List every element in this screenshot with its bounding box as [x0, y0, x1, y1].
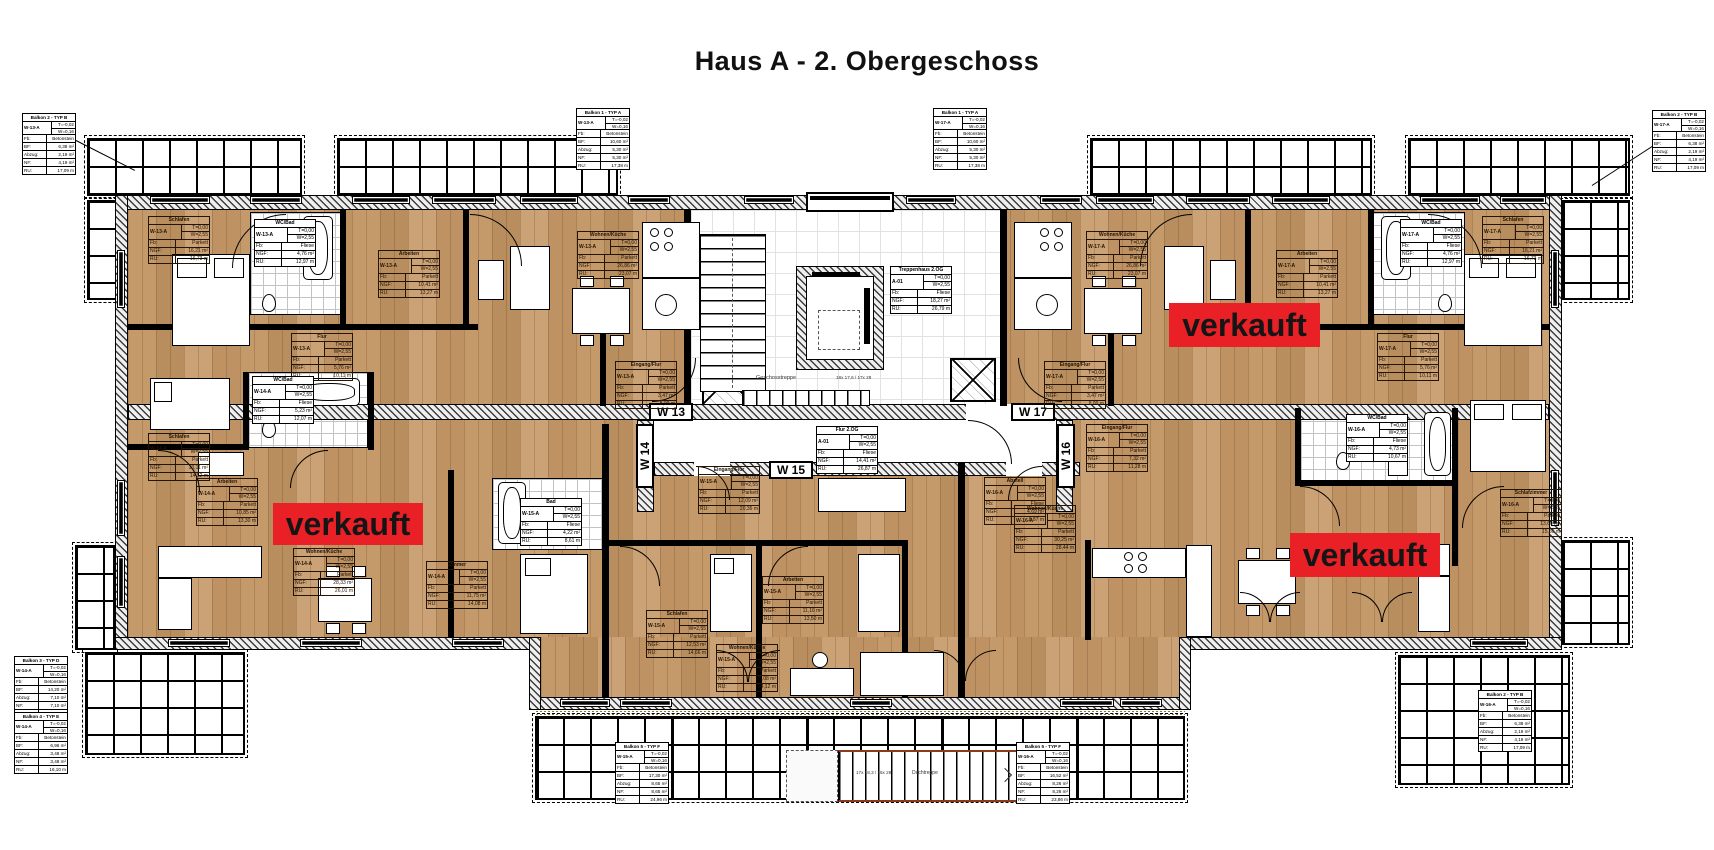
entrance-door [806, 192, 894, 212]
wall [243, 372, 249, 450]
room-table-arbeiten-w14: ArbeitenW-14-AT=0,00W=2,55Fb:ParkettNGF:… [196, 478, 258, 526]
chair [1122, 335, 1136, 346]
elevator-counterweight [864, 288, 870, 344]
elevator-clearance [818, 310, 860, 350]
window [117, 250, 125, 308]
sofa-w16-b [1418, 576, 1450, 632]
window [117, 480, 125, 536]
pillow [1474, 404, 1504, 420]
window [168, 639, 230, 647]
window [560, 699, 610, 707]
wall [340, 210, 346, 326]
window [1060, 699, 1114, 707]
sold-banner-w17: verkauft [1169, 303, 1320, 347]
room-table-bad-w16: WC/BadW-16-AT=0,00W=2,55Fb:FlieseNGF:4,7… [1346, 414, 1408, 462]
outer-stair-label: Dachtreppe [912, 770, 938, 776]
wall-mid-upper [128, 404, 1549, 420]
room-table-schlafen-w13: SchlafenW-13-AT=0,00W=2,55Fb:ParkettNGF:… [148, 216, 210, 264]
wall-step-left [529, 637, 541, 710]
unit-label-w16: W 16 [1057, 424, 1075, 488]
wall [1452, 408, 1458, 566]
window [300, 639, 362, 647]
balcony-bottom-left-side [75, 545, 115, 650]
room-table-bad-w14: WC/BadW-14-AT=0,00W=2,55Fb:FlieseNGF:5,2… [252, 376, 314, 424]
dining-table-w13 [572, 288, 630, 334]
window [1420, 196, 1480, 204]
room-table-schlafzimmer-w16: SchlafzimmerW-16-AT=0,00W=2,55Fb:Parkett… [1500, 489, 1562, 537]
window [432, 196, 496, 204]
room-table-wohnen-w17: Wohnen/KücheW-17-AT=0,00W=2,55Fb:Parkett… [1086, 231, 1148, 279]
balcony-top-right [1408, 138, 1630, 196]
pillow [525, 558, 551, 576]
wall [1295, 480, 1458, 486]
room-table-wohnen-w16: Wohnen/KücheW-16-AT=0,00W=2,55Fb:Parkett… [1014, 505, 1076, 553]
room-table-wohnen-w14: Wohnen/KücheW-14-AT=0,00W=2,55Fb:Parkett… [293, 548, 355, 596]
chair [580, 335, 594, 346]
kitchen-counter-w15 [818, 478, 906, 512]
window [1120, 699, 1162, 707]
wall [463, 210, 469, 326]
window [628, 196, 670, 204]
balcony-table-terrace-right: Balkon 5 - TYP FW-16-AT=-0,02W=0,16Fb:Be… [1016, 742, 1070, 804]
balcony-table-top-left: Balkon 2 - TYP BW-13-AT=-0,02W=0,16Fb:Be… [22, 113, 76, 175]
unit-label-w15: W 15 [769, 461, 813, 479]
stair-flight [700, 234, 766, 392]
chair [1276, 548, 1290, 559]
balcony-table-bottom-left-b: Balkon 4 - TYP EW-14-AT=-0,02W=0,16Fb:Be… [14, 712, 68, 774]
toilet-w17 [1438, 294, 1452, 312]
outer-stair-dims: 17x 18,3 / 16x 28 [856, 770, 891, 775]
shaft-right [950, 358, 996, 402]
stove-burner [664, 228, 673, 237]
wall [368, 372, 374, 450]
pillow [1512, 404, 1542, 420]
pillow [714, 558, 734, 574]
entrance-threshold [810, 196, 890, 200]
balcony-top-left [87, 138, 302, 196]
wall [1368, 210, 1374, 326]
room-table-treppenhaus: Treppenhaus 2.OGA-01T=0,00W=2,55Fb:Flies… [890, 266, 952, 314]
stove-burner [1124, 552, 1133, 561]
window [352, 196, 410, 204]
room-table-schlafen-w17: SchlafenW-17-AT=0,00W=2,55Fb:ParkettNGF:… [1482, 216, 1544, 264]
balcony-bottom-right-side [1562, 540, 1630, 645]
window [150, 196, 210, 204]
balcony-top-right-side [1562, 200, 1630, 300]
stove-burner [650, 242, 659, 251]
room-table-bad-w13: WC/BadW-13-AT=0,00W=2,55Fb:FlieseNGF:4,7… [254, 219, 316, 267]
chair [326, 623, 340, 634]
window [250, 196, 302, 204]
window [1470, 639, 1528, 647]
room-table-eingang-w15: Eingang/FlurW-15-AT=0,00W=2,55Fb:Parkett… [698, 466, 760, 514]
floor-plan: Haus A - 2. Obergeschoss [0, 0, 1714, 850]
room-table-bad-w15: BadW-15-AT=0,00W=2,55Fb:FlieseNGF:4,22 m… [520, 498, 582, 546]
bathtub-w16 [1424, 412, 1451, 476]
sofa-w14-b [158, 578, 192, 630]
room-table-arbeiten-w17: ArbeitenW-17-AT=0,00W=2,55Fb:ParkettNGF:… [1276, 250, 1338, 298]
window [744, 196, 794, 204]
window [906, 196, 956, 204]
chair [610, 335, 624, 346]
balcony-table-top-right: Balkon 2 - TYP BW-17-AT=-0,02W=0,16Fb:Be… [1652, 110, 1706, 172]
wall [1085, 540, 1091, 640]
room-table-flur-w17: FlurW-17-AT=0,00W=2,55Fb:ParkettNGF:5,76… [1377, 333, 1439, 381]
balcony-table-top-mid-right: Balkon 1 - TYP AW-17-AT=-0,02W=0,16Fb:Be… [933, 108, 987, 170]
stove-burner [1040, 228, 1049, 237]
room-table-flur-og: Flur 2.OGA-01T=0,00W=2,55Fb:FlieseNGF:14… [816, 426, 878, 474]
kitchen-island-w15 [790, 668, 854, 696]
toilet-w13 [262, 294, 276, 312]
sold-banner-w14: verkauft [273, 503, 423, 545]
sideboard-w15 [860, 652, 944, 696]
balcony-table-terrace-left: Balkon 5 - TYP FW-15-AT=-0,02W=0,16Fb:Be… [615, 742, 669, 804]
elevator-door [812, 272, 860, 276]
stair-bottom-run [742, 390, 870, 406]
window [1040, 196, 1082, 204]
wall [602, 424, 609, 697]
chair [1092, 335, 1106, 346]
room-table-arbeiten-w13: ArbeitenW-13-AT=0,00W=2,55Fb:ParkettNGF:… [378, 250, 440, 298]
stove-burner [1138, 564, 1147, 573]
window [1272, 196, 1330, 204]
window [1551, 250, 1559, 308]
chair [352, 623, 366, 634]
room-table-wohnen-w15: Wohnen/KücheW-15-AT=0,00W=2,55Fb:Parkett… [716, 644, 778, 692]
wall-step-right [1179, 637, 1191, 710]
bed-w15-b [858, 554, 900, 632]
balcony-table-bottom-right: Balkon 2 - TYP BW-16-AT=-0,02W=0,16Fb:Be… [1478, 690, 1532, 752]
window [117, 556, 125, 608]
stove-burner [1138, 552, 1147, 561]
balcony-table-top-mid-left: Balkon 1 - TYP AW-13-AT=-0,02W=0,16Fb:Be… [576, 108, 630, 170]
page-title: Haus A - 2. Obergeschoss [607, 46, 1127, 77]
room-table-eingang-w16: Eingang/FlurW-16-AT=0,00W=2,55Fb:Parkett… [1086, 424, 1148, 472]
room-table-wohnen-w13: Wohnen/KücheW-13-AT=0,00W=2,55Fb:Parkett… [577, 231, 639, 279]
wall [1295, 408, 1301, 486]
unit-label-w14: W 14 [636, 424, 654, 488]
window [1186, 196, 1250, 204]
sold-banner-w16: verkauft [1290, 533, 1440, 577]
pillow [154, 382, 172, 402]
stove-burner [650, 228, 659, 237]
kitchen-sink-w17 [1036, 294, 1058, 316]
room-table-schlafen-w15: SchlafenW-15-AT=0,00W=2,55Fb:ParkettNGF:… [646, 610, 708, 658]
stove-burner [1040, 242, 1049, 251]
room-table-bad-w17: WC/BadW-17-AT=0,00W=2,55Fb:FlieseNGF:4,7… [1400, 219, 1462, 267]
outer-stair [838, 750, 1022, 802]
room-table-eingang-w17: Eingang/FlurW-17-AT=0,00W=2,55Fb:Parkett… [1044, 361, 1106, 409]
gravel-strip [535, 710, 1185, 716]
window [452, 639, 504, 647]
sofa-w14-a [158, 546, 262, 578]
coffee-table-w13 [478, 260, 504, 300]
coffee-table-w17 [1210, 260, 1236, 300]
stair-dims: 18x 17,6 / 17x 28 [836, 375, 871, 380]
outer-stair-landing [786, 750, 838, 802]
balcony-top-mid-right [1090, 138, 1372, 196]
cooktop-pot [812, 652, 828, 668]
wall [448, 470, 454, 637]
room-table-zimmer-w14: ZimmerW-14-AT=0,00W=2,55Fb:ParkettNGF:11… [426, 561, 488, 609]
balcony-table-bottom-left-a: Balkon 3 - TYP DW-14-AT=-0,02W=0,16Fb:Be… [14, 656, 68, 718]
room-table-arbeiten-w15: ArbeitenW-15-AT=0,00W=2,55Fb:ParkettNGF:… [762, 576, 824, 624]
window [520, 196, 578, 204]
chair [1246, 548, 1260, 559]
stair-walkline [732, 238, 733, 388]
window [1096, 196, 1154, 204]
kitchen-sink-w13 [655, 294, 677, 316]
wall [600, 330, 606, 406]
window [620, 699, 672, 707]
room-table-eingang-w13: Eingang/FlurW-13-AT=0,00W=2,55Fb:Parkett… [615, 361, 677, 409]
opening-stair-corridor [966, 404, 1014, 420]
wall [1108, 330, 1114, 406]
balcony-bottom-left [85, 652, 245, 755]
stove-burner [1054, 242, 1063, 251]
stove-burner [1054, 228, 1063, 237]
stove-burner [664, 242, 673, 251]
window [850, 699, 892, 707]
room-table-schlafen-w14: SchlafenW-14-AT=0,00W=2,55Fb:ParkettNGF:… [148, 433, 210, 481]
kitchen-tall-unit-w16 [1186, 545, 1212, 637]
stove-burner [1124, 564, 1133, 573]
stair-label: Geschosstreppe [756, 375, 796, 381]
window [1500, 196, 1546, 204]
room-table-flur-w13: FlurW-13-AT=0,00W=2,55Fb:ParkettNGF:5,76… [291, 333, 353, 381]
wall [1000, 210, 1007, 406]
dining-table-w17 [1084, 288, 1142, 334]
